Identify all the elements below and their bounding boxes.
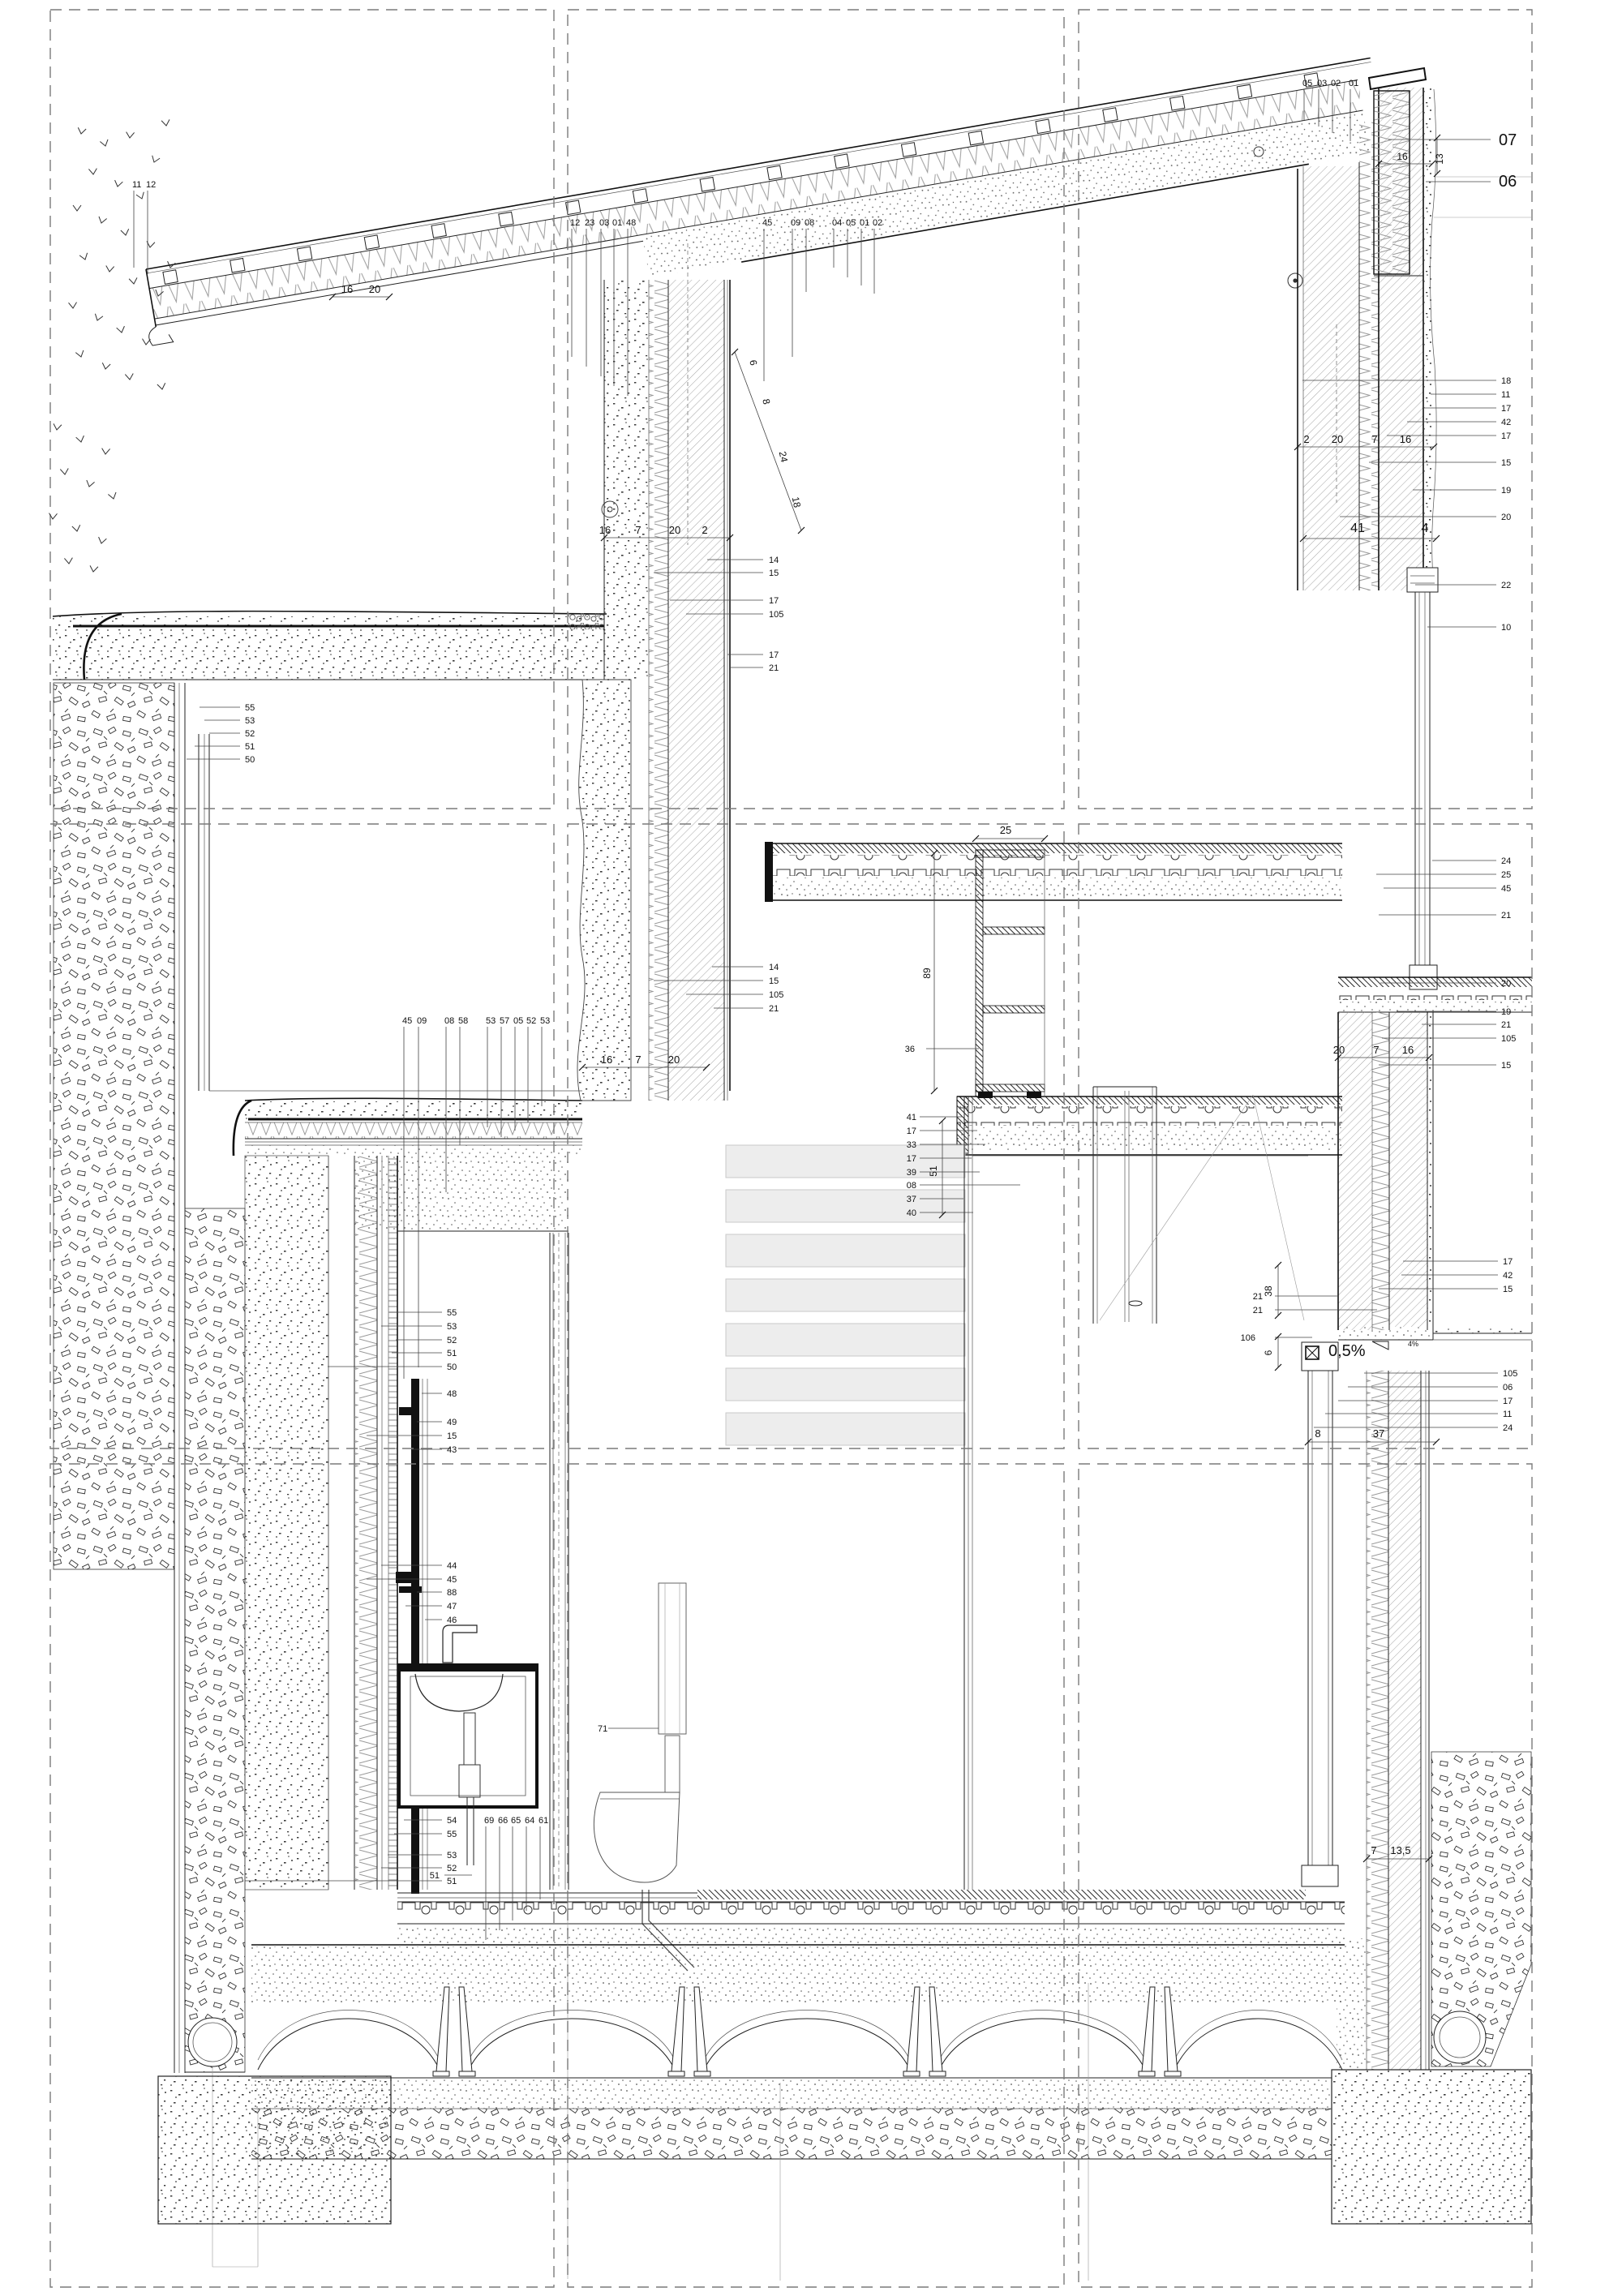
callout-label: 52 (447, 1336, 457, 1345)
callout-label: 7 (1373, 1044, 1379, 1056)
basement-window-sill (1302, 1865, 1338, 1886)
tall-frame-section (411, 1379, 419, 1894)
callout-label: 20 (668, 1054, 680, 1066)
backfill-left (245, 1156, 328, 1890)
callout-label: 51 (430, 1871, 440, 1881)
callout-label: 25 (1501, 870, 1511, 880)
callout-label: 38 (1263, 1285, 1274, 1297)
callout-label: 03 (599, 218, 609, 228)
callout-label: 7 (1371, 1844, 1376, 1856)
callout-label: 64 (525, 1816, 534, 1826)
callout-label: 16 (1397, 151, 1408, 162)
wall-concrete (668, 280, 724, 1101)
callout-label: 16 (1400, 433, 1411, 445)
callout-label: 7 (635, 524, 641, 536)
callout-label: 12 (146, 180, 156, 190)
callout-label: 41 (1350, 521, 1365, 535)
callout-label: 21 (769, 663, 779, 673)
footing-right (1332, 2070, 1531, 2224)
callout-label: 49 (447, 1418, 457, 1427)
rubble-bed (251, 2109, 1332, 2159)
roof-assembly (137, 58, 1386, 364)
callout-label: 18 (1501, 376, 1511, 386)
callout-label: 7 (635, 1054, 641, 1066)
callout-label: 6 (1263, 1350, 1274, 1355)
vegetation-marks (49, 119, 175, 572)
callout-label: 50 (245, 755, 255, 765)
callout-label: 03 (1317, 79, 1327, 88)
callout-label: 48 (447, 1389, 457, 1399)
construction-detail-sheet: 1223030148450908040501020503020111121620… (0, 0, 1622, 2296)
callout-label: 51 (928, 1165, 939, 1177)
callout-label: 24 (1501, 856, 1511, 866)
callout-label: 52 (447, 1864, 457, 1873)
gutter (148, 324, 174, 346)
callout-label: 17 (1501, 404, 1511, 414)
callout-label: 2 (1303, 433, 1309, 445)
callout-label: 11 (132, 180, 141, 190)
callout-label: 36 (905, 1045, 915, 1054)
callout-label: 24 (777, 450, 791, 463)
callout-label: 16 (1402, 1044, 1414, 1056)
roof-insulation (149, 80, 1362, 320)
callout-label: 21 (769, 1004, 779, 1014)
wall-drain-board (577, 680, 631, 1101)
callout-label: 08 (444, 1016, 454, 1026)
callout-label: 23 (585, 218, 594, 228)
callout-label: 45 (447, 1575, 457, 1585)
callout-label: 53 (540, 1016, 550, 1026)
callout-label: 15 (1501, 1061, 1511, 1071)
roof-insulation-lower (245, 1122, 582, 1139)
wall-insulation (649, 280, 668, 1101)
callout-label: 24 (1503, 1423, 1513, 1433)
callout-label: 54 (447, 1816, 457, 1826)
callout-label: 37 (1373, 1427, 1384, 1440)
callout-label: 21 (1253, 1292, 1263, 1302)
callout-label: 15 (769, 976, 779, 986)
callout-label: 41 (907, 1113, 916, 1122)
callout-label: 05 (846, 218, 856, 228)
callout-label: 69 (484, 1816, 494, 1826)
callout-label: 4% (1408, 1340, 1418, 1348)
callout-label: 12 (570, 218, 580, 228)
callout-label: 13 (1434, 153, 1445, 165)
callout-label: 61 (539, 1816, 548, 1826)
callout-label: 01 (860, 218, 869, 228)
callout-label: 08 (907, 1181, 916, 1191)
callout-label: 55 (447, 1308, 457, 1318)
callout-label: 46 (447, 1616, 457, 1625)
underfloor-heating (397, 1902, 1345, 1924)
vault-topping (251, 1946, 1342, 2003)
callout-label: 10 (1501, 623, 1511, 633)
callout-label: 105 (769, 610, 783, 620)
callout-label: 42 (1503, 1271, 1513, 1281)
drain-gravel-core (185, 1208, 245, 2072)
callout-label: 53 (447, 1851, 457, 1860)
callout-label: 40 (907, 1208, 916, 1218)
gravel-bed (251, 2078, 1332, 2109)
callout-label: 57 (500, 1016, 509, 1026)
callout-label: 17 (1503, 1397, 1513, 1406)
callout-label: 13,5 (1390, 1844, 1410, 1856)
wall-render-layer (604, 280, 649, 680)
callout-label: 51 (245, 742, 255, 752)
callout-label: 105 (1501, 1034, 1516, 1044)
callout-label: 06 (1499, 173, 1517, 191)
section-drawing: 1223030148450908040501020503020111121620… (0, 0, 1622, 2296)
callout-label: 21 (1501, 1020, 1511, 1030)
right-basement-zone (1302, 1342, 1531, 2224)
callout-label: 45 (1501, 884, 1511, 894)
callout-label: 15 (769, 569, 779, 578)
callout-label: 33 (907, 1140, 916, 1150)
window-head-frame (1407, 568, 1438, 592)
callout-label: 15 (1501, 458, 1511, 468)
callout-label: 25 (1000, 824, 1011, 836)
callout-label: 20 (1333, 1044, 1345, 1056)
callout-label: 22 (1501, 581, 1511, 590)
callout-label: 15 (447, 1431, 457, 1441)
callout-label: 04 (832, 218, 842, 228)
callout-label: 20 (669, 524, 680, 536)
callout-label: 17 (1503, 1257, 1513, 1267)
floor-finish (697, 1890, 1306, 1899)
callout-label: 45 (762, 218, 772, 228)
callout-label: 66 (498, 1816, 508, 1826)
right-window-and-deck (1338, 592, 1532, 1350)
parapet-concrete (1338, 1012, 1372, 1330)
callout-label: 8 (760, 397, 772, 406)
left-hillside (54, 683, 582, 2267)
callout-label: 20 (1501, 979, 1511, 989)
callout-label: 55 (245, 703, 255, 713)
callout-label: 16 (341, 283, 353, 295)
footing-left (158, 2076, 391, 2224)
door-handle (1129, 1301, 1142, 1306)
callout-label: 15 (1503, 1285, 1513, 1294)
callout-label: 52 (526, 1016, 536, 1026)
callout-label: 16 (599, 524, 611, 536)
callout-label: 51 (447, 1349, 457, 1358)
callout-label: 14 (769, 556, 779, 565)
washbasin-vanity (399, 1625, 537, 1865)
callout-label: 42 (1501, 418, 1511, 427)
callout-label: 02 (873, 218, 882, 228)
callout-label: 52 (245, 729, 255, 739)
callout-label: 16 (601, 1054, 612, 1066)
callout-label: 88 (447, 1588, 457, 1598)
callout-label: 06 (1503, 1383, 1513, 1393)
callout-label: 0,5% (1328, 1342, 1366, 1360)
buried-slab-over-bathroom (354, 1156, 569, 1231)
wall-insulation-left (354, 1156, 377, 1890)
upper-floor-finish (765, 843, 1342, 853)
pebble-strip (568, 613, 604, 629)
callout-label: 55 (447, 1830, 457, 1839)
slope-wedge-icon (1372, 1341, 1388, 1350)
callout-label: 18 (790, 496, 804, 509)
callout-label: 39 (907, 1168, 916, 1178)
callout-label: 37 (907, 1195, 916, 1204)
callout-label: 7 (1371, 433, 1377, 445)
callout-label: 105 (769, 990, 783, 1000)
callout-label: 21 (1253, 1306, 1263, 1315)
terrace-paving (1433, 1327, 1532, 1333)
callout-label: 6 (747, 358, 759, 367)
callout-label: 8 (1315, 1427, 1320, 1440)
staircase (726, 1145, 965, 1445)
drainage-rubble-left (54, 683, 174, 1569)
callout-label: 106 (1241, 1333, 1255, 1343)
callout-label: 50 (447, 1363, 457, 1372)
tap (443, 1625, 477, 1663)
callout-label: 01 (1349, 79, 1358, 88)
callout-label: 47 (447, 1602, 457, 1611)
callout-label: 2 (702, 524, 707, 536)
callout-label: 11 (1503, 1410, 1512, 1419)
callout-label: 71 (598, 1724, 607, 1734)
callout-label: 58 (458, 1016, 468, 1026)
tile-finish-left (388, 1156, 397, 1890)
callout-label: 53 (486, 1016, 496, 1026)
centre-interior (726, 842, 1342, 1890)
callout-label: 51 (447, 1877, 457, 1886)
callout-label: 11 (1501, 390, 1510, 400)
callout-label: 17 (769, 650, 779, 660)
callout-label: 105 (1503, 1369, 1517, 1379)
bathroom (396, 1233, 694, 1971)
callout-label: 08 (805, 218, 814, 228)
callout-label: 17 (1501, 431, 1511, 441)
callout-label: 17 (907, 1127, 916, 1136)
callout-label: 17 (769, 596, 779, 606)
callout-label: 05 (513, 1016, 523, 1026)
callout-label: 02 (1331, 79, 1341, 88)
callout-label: 20 (1501, 513, 1511, 522)
callout-label: 4 (1422, 521, 1429, 535)
callout-label: 20 (369, 283, 380, 295)
callout-label: 20 (1332, 433, 1343, 445)
callout-label: 53 (447, 1322, 457, 1332)
callout-label: 09 (791, 218, 800, 228)
green-roof-upper (53, 612, 607, 680)
callout-label: 48 (626, 218, 636, 228)
ground-floor-and-foundation (158, 1890, 1345, 2281)
callout-label: 01 (612, 218, 622, 228)
callout-label: 45 (402, 1016, 412, 1026)
callout-label: 17 (907, 1154, 916, 1164)
callout-label: 53 (245, 716, 255, 726)
fascia-insulated-box (1374, 91, 1410, 274)
callout-label: 44 (447, 1561, 457, 1571)
callout-label: 65 (511, 1816, 521, 1826)
callout-label: 89 (921, 968, 933, 979)
callout-label: 05 (1302, 79, 1312, 88)
callout-label: 14 (769, 963, 779, 972)
callout-label: 07 (1499, 131, 1517, 149)
callout-label: 09 (417, 1016, 427, 1026)
callout-label: 43 (447, 1445, 457, 1455)
callout-label: 19 (1501, 486, 1511, 496)
callout-label: 21 (1501, 911, 1511, 921)
callout-label: 19 (1501, 1007, 1511, 1017)
mid-floor-finish (957, 1097, 1342, 1105)
